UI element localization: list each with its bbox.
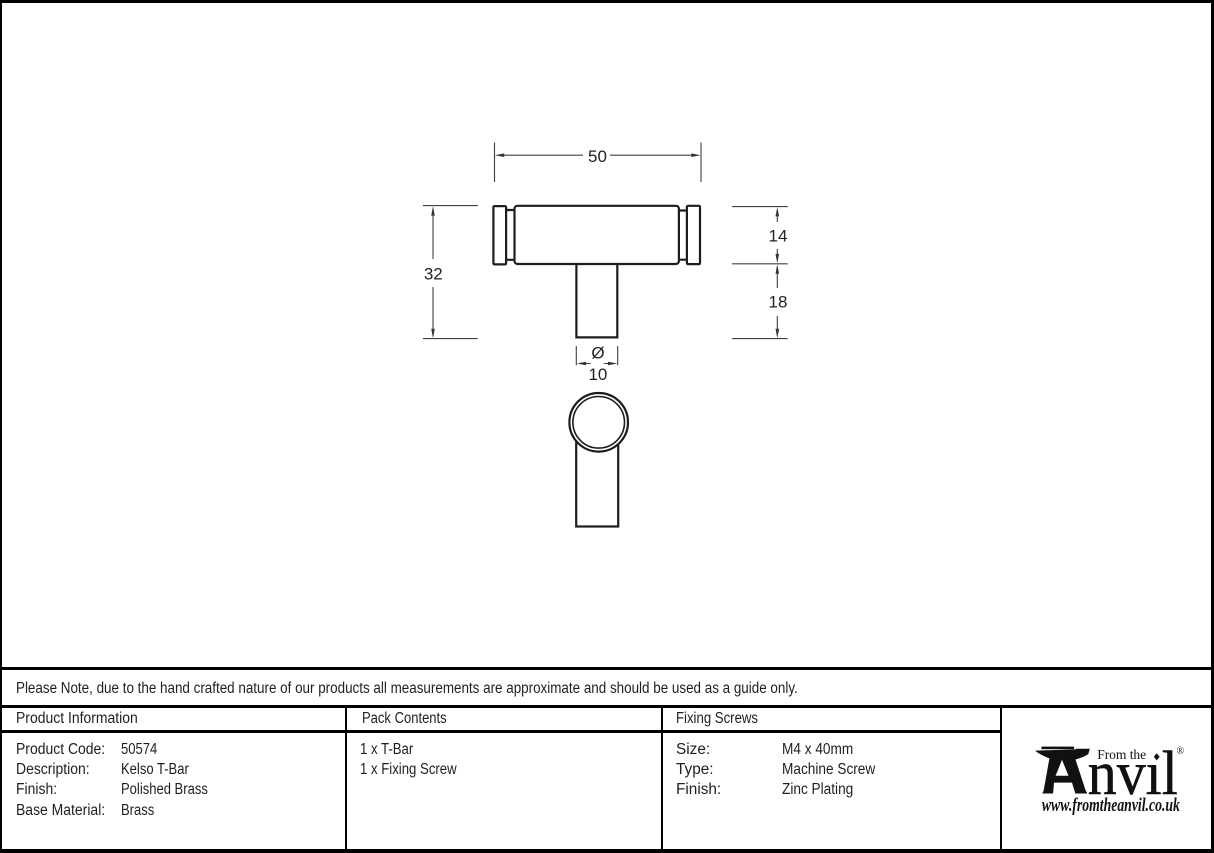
svg-text:32: 32 [424,265,443,284]
svg-text:From the: From the [1097,747,1146,762]
svg-text:www.fromtheanvil.co.uk: www.fromtheanvil.co.uk [1042,795,1180,816]
svg-text:®: ® [1177,746,1185,757]
svg-text:Ø: Ø [591,344,604,363]
svg-text:14: 14 [769,226,788,245]
svg-text:18: 18 [769,293,788,312]
svg-text:10: 10 [588,365,607,384]
svg-text:50: 50 [588,147,607,166]
